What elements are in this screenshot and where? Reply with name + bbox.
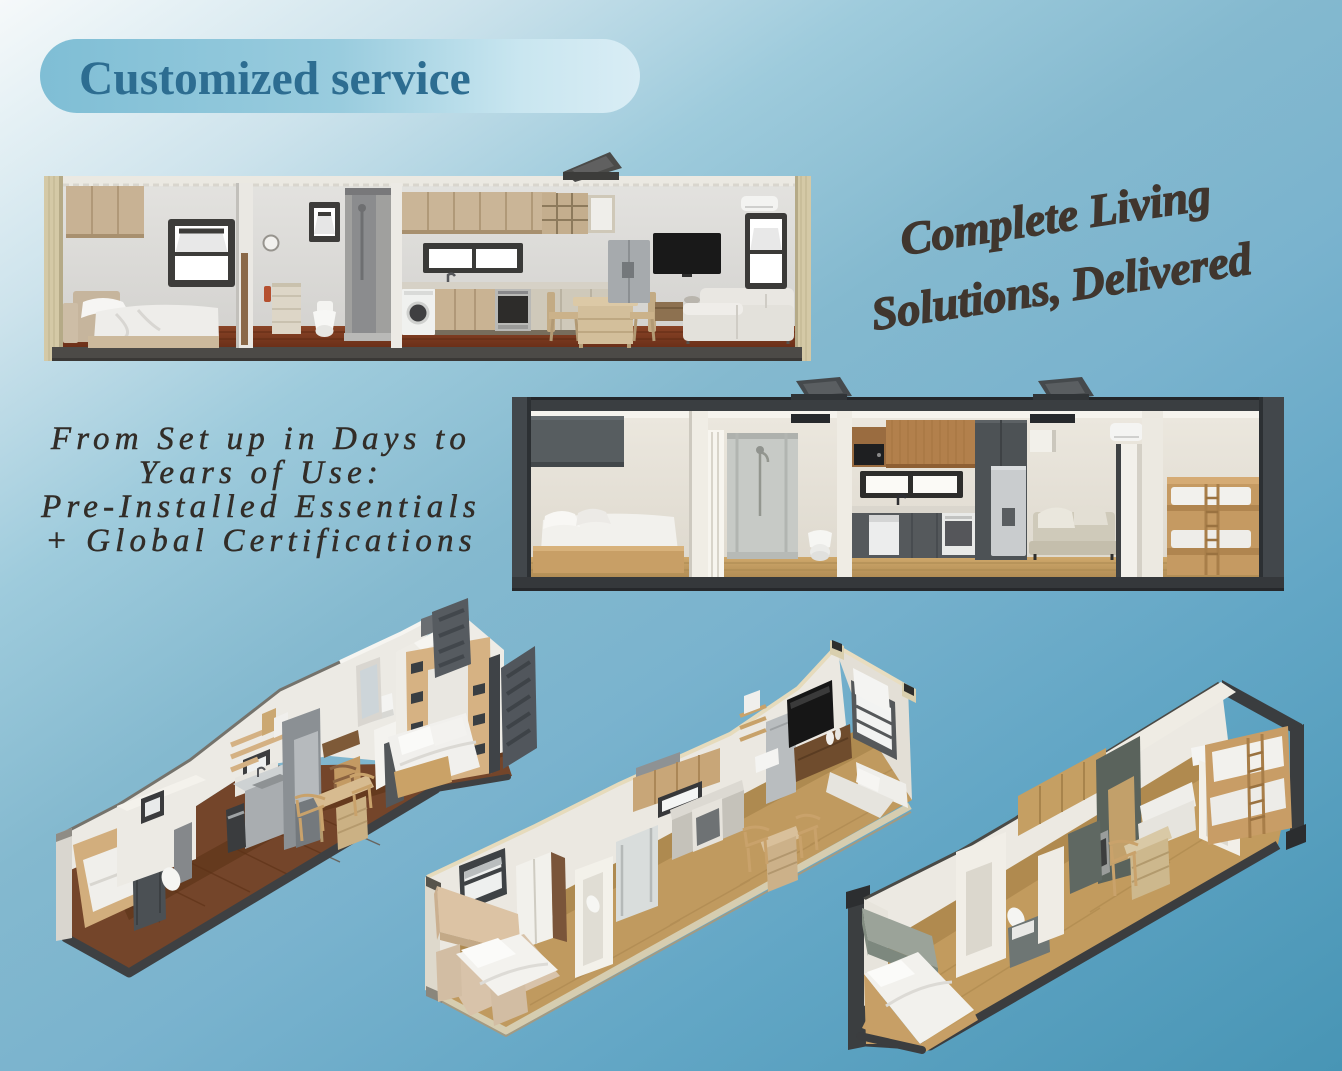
svg-text:Years of Use:: Years of Use: — [139, 455, 383, 491]
svg-text:Pre-Installed Essentials: Pre-Installed Essentials — [40, 489, 481, 525]
svg-text:From Set up in Days to: From Set up in Days to — [50, 421, 471, 457]
svg-text:Customized service: Customized service — [79, 53, 471, 105]
svg-text:+ Global Certifications: + Global Certifications — [45, 523, 477, 559]
